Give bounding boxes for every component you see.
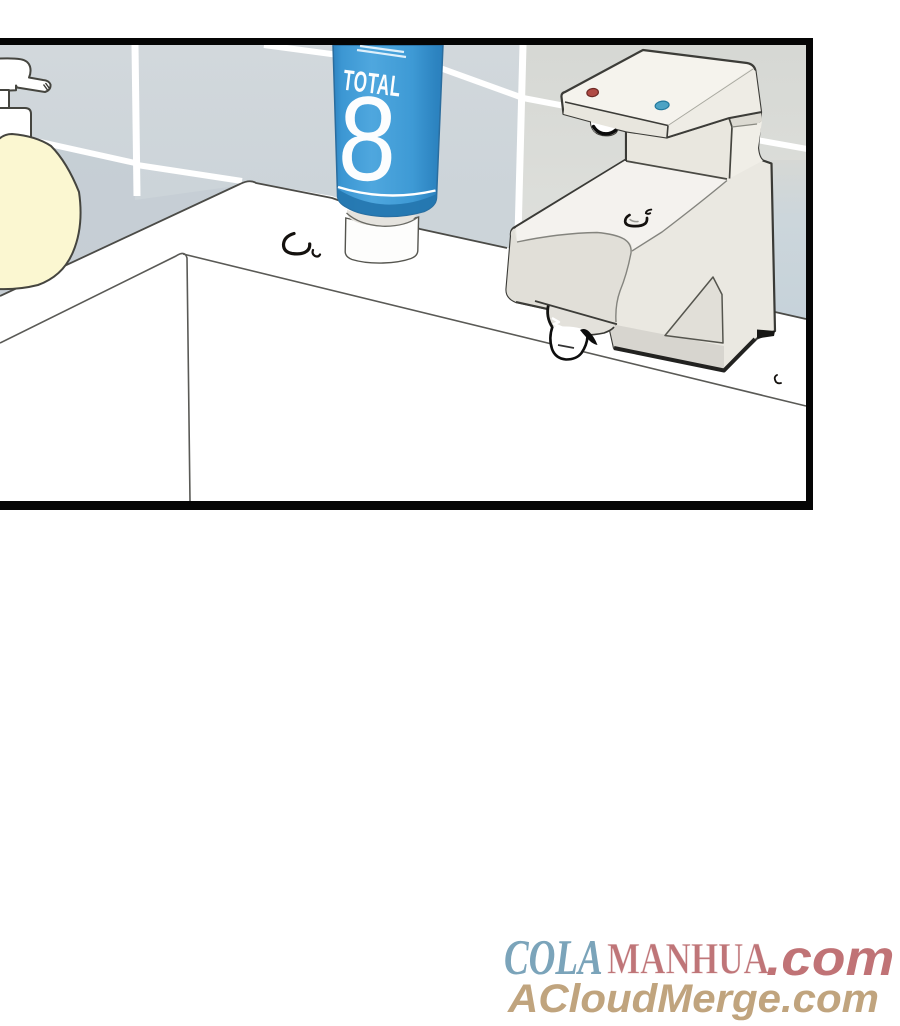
svg-text:MANHUA: MANHUA xyxy=(607,934,769,984)
svg-text:ACloudMerge.com: ACloudMerge.com xyxy=(507,977,879,1021)
svg-text:8: 8 xyxy=(336,71,399,207)
